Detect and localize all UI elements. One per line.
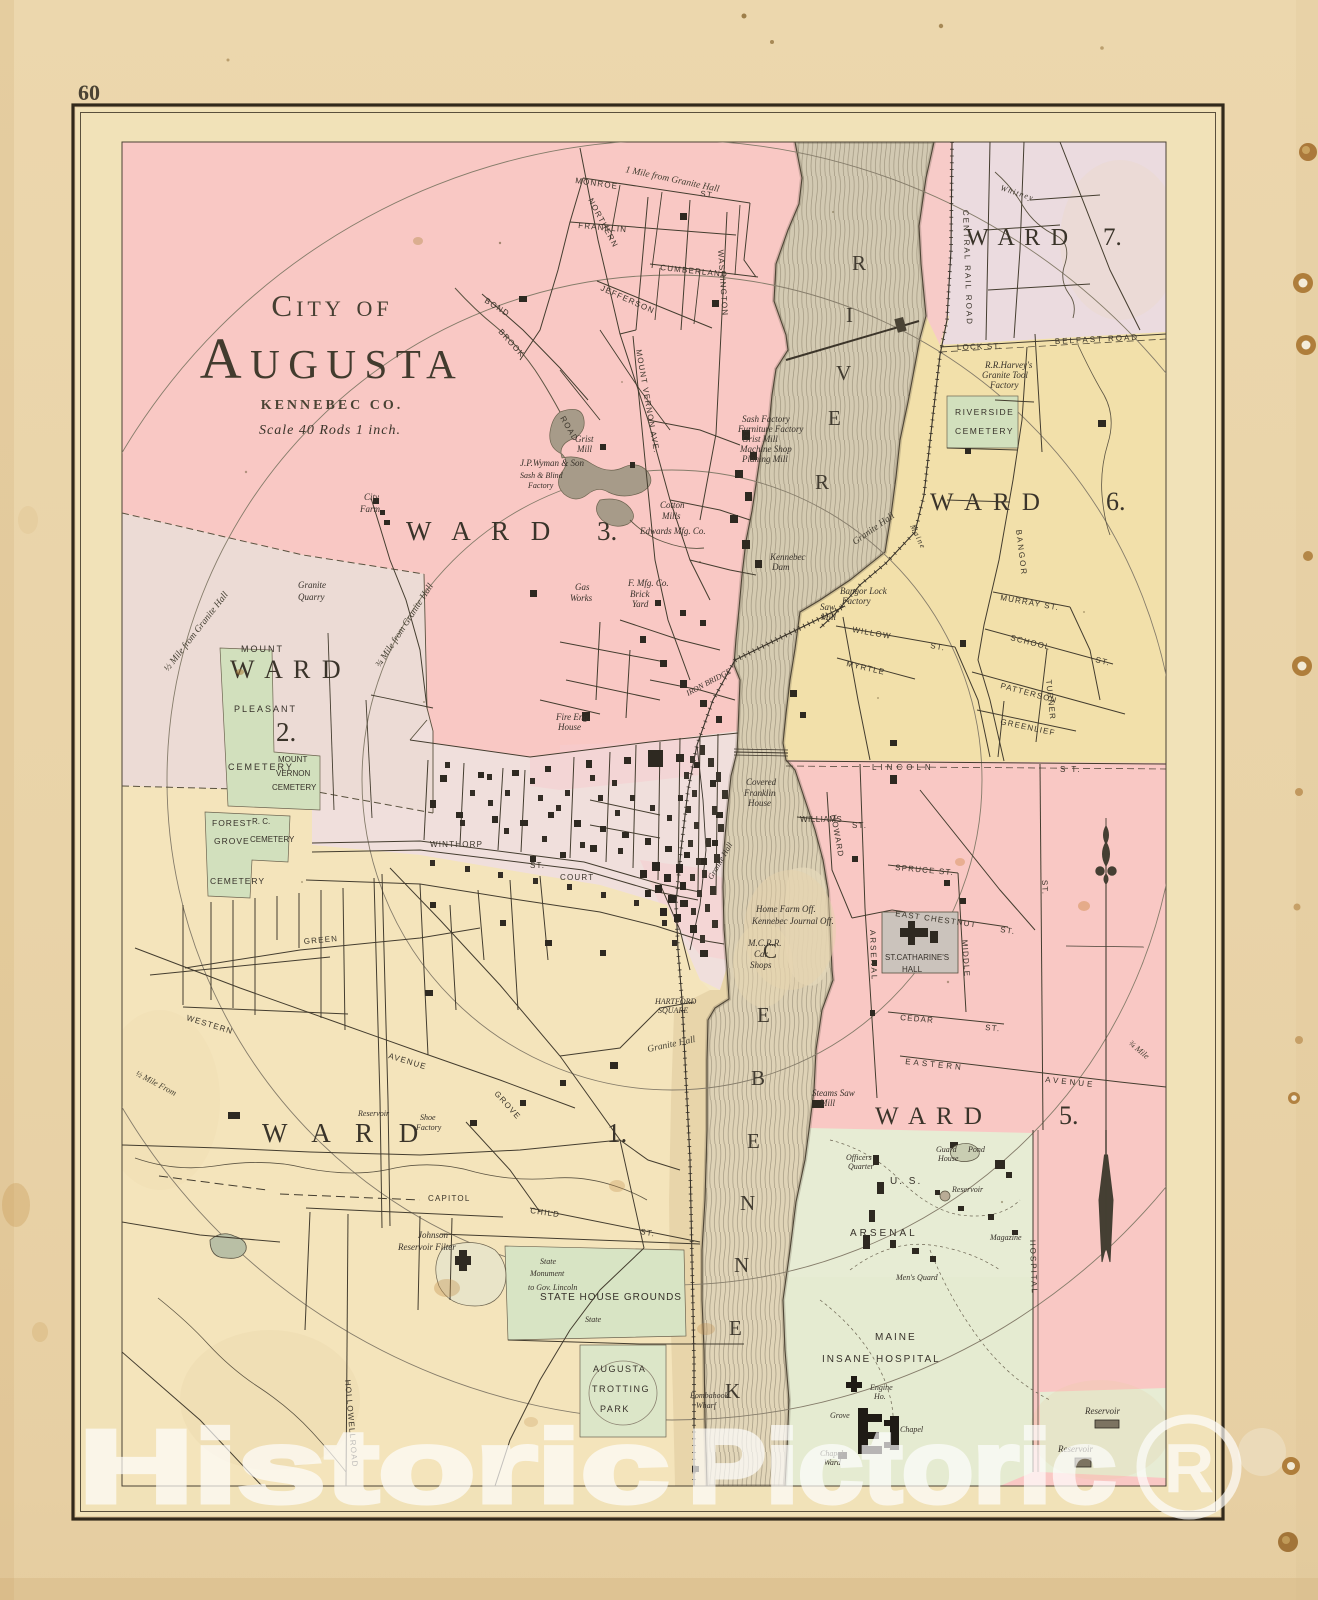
svg-text:Dam: Dam: [771, 562, 790, 572]
svg-text:Bombahook: Bombahook: [690, 1391, 729, 1400]
svg-text:1.: 1.: [607, 1118, 627, 1148]
svg-text:Ho.: Ho.: [873, 1392, 886, 1401]
svg-text:W A R D: W A R D: [966, 225, 1070, 251]
svg-text:Mill: Mill: [820, 612, 836, 622]
svg-text:7.: 7.: [1103, 224, 1122, 251]
svg-text:TROTTING: TROTTING: [592, 1384, 650, 1394]
svg-text:Brick: Brick: [630, 589, 650, 599]
svg-text:Home Farm Off.: Home Farm Off.: [755, 904, 816, 914]
svg-text:Reservoir Filter: Reservoir Filter: [397, 1242, 456, 1252]
svg-text:Granite: Granite: [298, 580, 326, 590]
svg-text:Quarry: Quarry: [298, 592, 325, 602]
svg-text:Covered: Covered: [746, 777, 777, 787]
svg-text:City of: City of: [271, 288, 392, 323]
svg-text:W A R D: W A R D: [930, 489, 1043, 516]
svg-text:SQUARE: SQUARE: [658, 1006, 688, 1015]
svg-text:VERNON: VERNON: [276, 769, 310, 778]
svg-text:Reservoir: Reservoir: [357, 1109, 390, 1118]
svg-text:State: State: [540, 1257, 556, 1266]
svg-text:Mills: Mills: [661, 511, 681, 521]
svg-text:Factory: Factory: [415, 1123, 442, 1132]
svg-text:60: 60: [78, 80, 100, 105]
svg-text:KENNEBEC CO.: KENNEBEC CO.: [261, 398, 404, 413]
svg-text:Quarter: Quarter: [848, 1162, 875, 1171]
svg-text:Scale 40 Rods 1 inch.: Scale 40 Rods 1 inch.: [259, 423, 401, 438]
svg-text:I: I: [846, 303, 853, 327]
svg-text:CEMETERY: CEMETERY: [210, 876, 265, 886]
svg-text:Historic: Historic: [79, 1409, 669, 1524]
svg-text:INSANE HOSPITAL: INSANE HOSPITAL: [822, 1354, 941, 1365]
svg-text:ST.: ST.: [852, 821, 867, 830]
svg-text:R: R: [852, 251, 866, 275]
svg-text:Augusta: Augusta: [200, 326, 464, 391]
svg-text:HOSPITAL: HOSPITAL: [1028, 1240, 1039, 1295]
svg-text:F. Mfg. Co.: F. Mfg. Co.: [627, 578, 669, 588]
svg-text:RIVERSIDE: RIVERSIDE: [955, 407, 1014, 417]
svg-text:W A R D: W A R D: [230, 655, 343, 684]
svg-text:House: House: [747, 798, 771, 808]
svg-text:2.: 2.: [276, 717, 296, 747]
svg-text:ST.CATHARINE'S: ST.CATHARINE'S: [885, 953, 949, 962]
svg-text:W A R D: W A R D: [406, 516, 558, 546]
svg-text:Saw: Saw: [820, 602, 835, 612]
svg-text:M.C.R.R.: M.C.R.R.: [747, 938, 782, 948]
svg-text:Sash Factory: Sash Factory: [742, 414, 790, 424]
svg-text:CEMETERY: CEMETERY: [272, 783, 317, 792]
svg-text:HARTFORD: HARTFORD: [654, 997, 697, 1006]
svg-text:Granite Tool: Granite Tool: [982, 370, 1028, 380]
svg-text:House: House: [937, 1154, 959, 1163]
svg-text:State: State: [585, 1315, 601, 1324]
svg-text:STATE HOUSE GROUNDS: STATE HOUSE GROUNDS: [540, 1292, 682, 1303]
svg-text:Works: Works: [570, 593, 593, 603]
svg-text:Monument: Monument: [529, 1269, 565, 1278]
svg-text:ST.: ST.: [1040, 880, 1050, 895]
svg-text:R: R: [815, 470, 829, 494]
svg-text:Guard: Guard: [936, 1145, 958, 1154]
svg-text:Factory: Factory: [527, 481, 554, 490]
svg-text:E: E: [729, 1316, 742, 1340]
svg-text:Pictoric: Pictoric: [688, 1409, 1116, 1524]
svg-text:GROVE: GROVE: [214, 836, 250, 846]
svg-text:Kennebec Journal Off.: Kennebec Journal Off.: [751, 916, 834, 926]
svg-text:W A R D: W A R D: [875, 1103, 984, 1130]
svg-text:3.: 3.: [597, 516, 617, 546]
svg-text:MAINE: MAINE: [875, 1332, 917, 1343]
svg-text:LOCK ST.: LOCK ST.: [957, 341, 1002, 352]
svg-text:CEMETERY: CEMETERY: [250, 835, 295, 844]
svg-text:Franklin: Franklin: [743, 788, 776, 798]
svg-text:W A R D: W A R D: [262, 1118, 428, 1148]
svg-text:N: N: [740, 1191, 755, 1215]
svg-text:MOUNT: MOUNT: [241, 644, 284, 654]
svg-text:Johnson: Johnson: [418, 1230, 448, 1240]
svg-text:N: N: [734, 1253, 749, 1277]
svg-text:MOUNT: MOUNT: [278, 755, 307, 764]
svg-text:R.R.Harvey's: R.R.Harvey's: [984, 360, 1033, 370]
svg-text:Shoe: Shoe: [420, 1113, 436, 1122]
svg-text:Steams Saw: Steams Saw: [812, 1088, 855, 1098]
svg-text:Furniture Factory: Furniture Factory: [737, 424, 803, 434]
svg-text:Officers: Officers: [846, 1153, 872, 1162]
svg-text:Gas: Gas: [575, 582, 590, 592]
svg-text:E: E: [828, 406, 841, 430]
svg-text:Machine Shop: Machine Shop: [739, 444, 792, 454]
svg-text:CEMETERY: CEMETERY: [955, 426, 1014, 436]
svg-text:HALL: HALL: [902, 965, 923, 974]
svg-text:U. S.: U. S.: [890, 1176, 922, 1187]
svg-text:E: E: [757, 1003, 770, 1027]
svg-text:ARSENAL: ARSENAL: [868, 930, 879, 982]
svg-text:Mill: Mill: [576, 444, 592, 454]
svg-text:ST.: ST.: [530, 861, 545, 870]
svg-text:City: City: [364, 492, 379, 502]
svg-text:V: V: [836, 361, 851, 385]
svg-text:FOREST: FOREST: [212, 818, 252, 828]
svg-text:Factory: Factory: [841, 596, 871, 606]
svg-text:Shops: Shops: [750, 960, 772, 970]
svg-text:Car: Car: [754, 949, 769, 959]
svg-text:Grist: Grist: [575, 434, 594, 444]
svg-text:Planing Mill: Planing Mill: [741, 454, 788, 464]
svg-text:S T.: S T.: [1060, 765, 1082, 774]
svg-text:COURT: COURT: [560, 873, 594, 882]
svg-text:Reservoir: Reservoir: [951, 1185, 984, 1194]
svg-text:Engine: Engine: [869, 1383, 893, 1392]
svg-text:House: House: [557, 722, 581, 732]
svg-text:5.: 5.: [1059, 1101, 1079, 1130]
svg-text:B: B: [751, 1066, 765, 1090]
svg-text:Fire Eng.: Fire Eng.: [555, 712, 590, 722]
svg-text:Sash & Blind: Sash & Blind: [520, 471, 564, 480]
svg-text:PLEASANT: PLEASANT: [234, 704, 297, 714]
svg-text:Kennebec: Kennebec: [769, 552, 805, 562]
svg-text:Bangor Lock: Bangor Lock: [840, 586, 888, 596]
svg-text:to Gov. Lincoln: to Gov. Lincoln: [528, 1283, 577, 1292]
svg-text:Men's Quard: Men's Quard: [895, 1273, 939, 1282]
svg-text:Factory: Factory: [989, 380, 1019, 390]
svg-text:Edwards Mfg. Co.: Edwards Mfg. Co.: [639, 526, 706, 536]
svg-text:CAPITOL: CAPITOL: [428, 1194, 471, 1203]
svg-text:Grist Mill: Grist Mill: [742, 434, 778, 444]
svg-text:Yard: Yard: [632, 599, 649, 609]
svg-text:WINTHORP: WINTHORP: [430, 840, 483, 849]
svg-text:6.: 6.: [1106, 487, 1126, 516]
svg-text:J.P.Wyman & Son: J.P.Wyman & Son: [520, 458, 584, 468]
svg-text:R. C.: R. C.: [252, 817, 270, 826]
svg-text:ST.: ST.: [985, 1023, 1001, 1033]
svg-text:AUGUSTA: AUGUSTA: [593, 1364, 646, 1374]
svg-text:Cotton: Cotton: [660, 500, 685, 510]
svg-text:Mill: Mill: [819, 1098, 835, 1108]
svg-text:E: E: [747, 1129, 760, 1153]
svg-text:Magazine: Magazine: [989, 1233, 1022, 1242]
svg-text:ARSENAL: ARSENAL: [850, 1228, 918, 1239]
svg-text:R: R: [1164, 1429, 1215, 1507]
svg-text:LINCOLN: LINCOLN: [872, 763, 935, 772]
svg-text:Pond: Pond: [967, 1145, 986, 1154]
svg-text:Farm: Farm: [359, 504, 381, 514]
